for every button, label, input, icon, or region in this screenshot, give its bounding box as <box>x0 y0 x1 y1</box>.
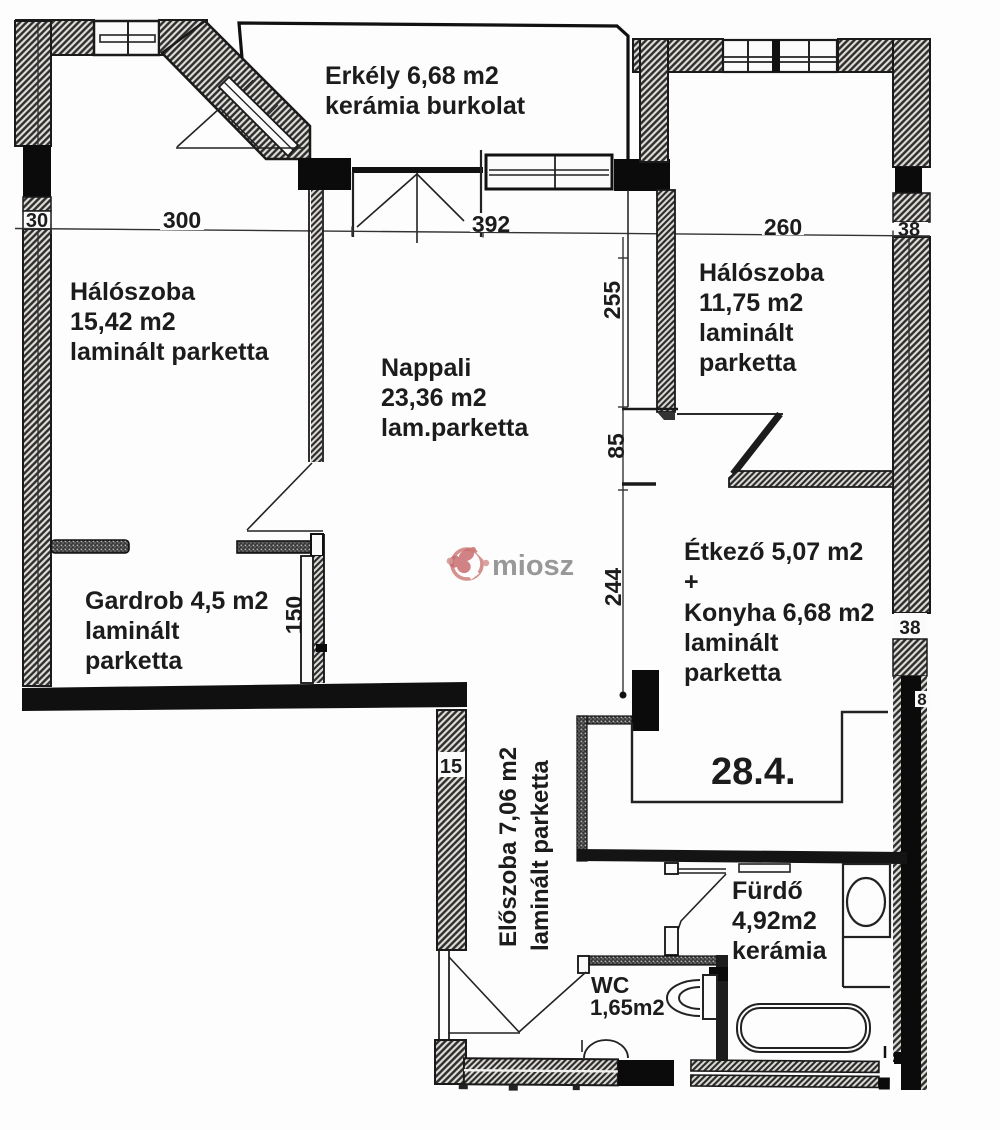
svg-text:parketta: parketta <box>699 349 797 377</box>
svg-text:Étkező 5,07 m2: Étkező 5,07 m2 <box>684 537 863 566</box>
svg-text:11,75 m2: 11,75 m2 <box>699 289 803 317</box>
svg-text:lam.parketta: lam.parketta <box>381 414 529 442</box>
svg-text:255: 255 <box>599 281 625 320</box>
svg-text:kerámia: kerámia <box>732 937 828 965</box>
svg-text:laminált parketta: laminált parketta <box>527 760 554 951</box>
svg-text:Fürdő: Fürdő <box>732 877 803 905</box>
svg-text:Nappali: Nappali <box>381 354 471 382</box>
svg-text:laminált: laminált <box>684 629 779 657</box>
svg-text:260: 260 <box>764 214 802 240</box>
svg-text:85: 85 <box>603 433 629 459</box>
svg-text:23,36 m2: 23,36 m2 <box>381 384 487 412</box>
svg-text:Előszoba 7,06 m2: Előszoba 7,06 m2 <box>495 747 522 947</box>
svg-text:laminált: laminált <box>85 617 180 645</box>
svg-text:8: 8 <box>917 690 926 709</box>
svg-text:miosz: miosz <box>492 550 574 582</box>
svg-text:300: 300 <box>163 207 201 233</box>
svg-text:+: + <box>684 568 699 596</box>
svg-text:4,92m2: 4,92m2 <box>732 907 817 935</box>
svg-text:38: 38 <box>899 618 920 639</box>
svg-text:15: 15 <box>440 756 462 778</box>
svg-text:244: 244 <box>600 568 626 607</box>
svg-text:Erkély 6,68 m2: Erkély 6,68 m2 <box>325 62 499 90</box>
svg-text:parketta: parketta <box>85 647 183 675</box>
svg-text:kerámia burkolat: kerámia burkolat <box>325 92 526 120</box>
svg-text:15,42 m2: 15,42 m2 <box>70 308 176 336</box>
svg-text:Hálószoba: Hálószoba <box>699 259 825 287</box>
svg-text:Hálószoba: Hálószoba <box>70 278 196 306</box>
svg-text:laminált parketta: laminált parketta <box>70 338 270 366</box>
svg-text:laminált: laminált <box>699 319 794 347</box>
svg-text:28.4.: 28.4. <box>711 751 796 793</box>
svg-text:Gardrob 4,5 m2: Gardrob 4,5 m2 <box>85 587 268 615</box>
svg-text:Konyha 6,68 m2: Konyha 6,68 m2 <box>684 599 874 627</box>
svg-text:392: 392 <box>472 211 510 237</box>
svg-text:1,65m2: 1,65m2 <box>590 995 665 1020</box>
svg-text:parketta: parketta <box>684 659 782 687</box>
